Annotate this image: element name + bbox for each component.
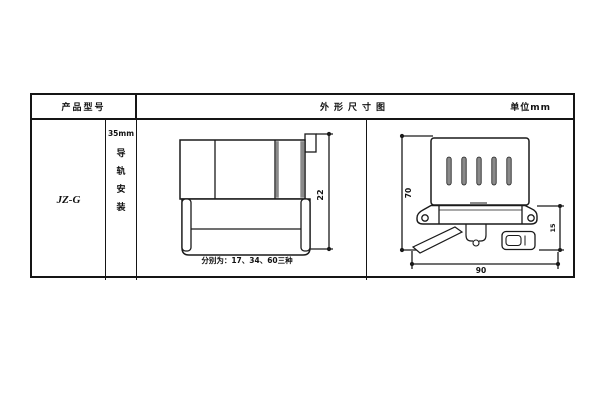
side-main-body <box>431 138 529 205</box>
side-view-cell: 70 15 90 <box>367 120 577 280</box>
product-model-header-cell: 产品型号 <box>32 95 137 118</box>
front-view-cell: 22 分别为：17、34、60三种 <box>137 120 367 280</box>
side-base <box>417 206 537 225</box>
rail-char: 装 <box>116 204 125 213</box>
unit-label: 单位mm <box>510 95 551 118</box>
rail-char: 轨 <box>116 168 125 177</box>
front-upper-body <box>180 140 305 199</box>
front-view-drawing: 22 分别为：17、34、60三种 <box>137 120 367 280</box>
model-cell: JZ-G <box>32 120 106 280</box>
side-height-dim-label: 70 <box>404 188 413 198</box>
mounting-cell: 35mm 导 轨 安 装 <box>106 120 137 280</box>
side-view-drawing: 70 15 90 <box>367 120 577 280</box>
table-body-row: JZ-G 35mm 导 轨 安 装 <box>32 120 573 280</box>
dimension-title-label: 外形尺寸图 <box>320 100 390 113</box>
rail-char: 安 <box>116 186 125 195</box>
model-name: JZ-G <box>57 194 81 206</box>
front-height-dim-label: 22 <box>316 189 325 200</box>
dimension-title-header-cell: 外形尺寸图 <box>137 95 573 118</box>
side-clip-dim-label: 15 <box>549 223 557 233</box>
rail-mount-vertical-label: 导 轨 安 装 <box>116 150 125 213</box>
rail-width-label: 35mm <box>108 129 134 138</box>
dimension-table: 产品型号 外形尺寸图 单位mm JZ-G 35mm 导 轨 安 装 <box>30 93 575 278</box>
front-top-tab <box>305 134 316 152</box>
product-model-label: 产品型号 <box>61 100 105 113</box>
din-rail-clip <box>413 224 535 253</box>
front-lower-body <box>182 199 310 255</box>
side-width-dim-label: 90 <box>476 266 486 275</box>
rail-char: 导 <box>116 150 125 159</box>
table-header-row: 产品型号 外形尺寸图 单位mm <box>32 95 573 120</box>
front-width-note: 分别为：17、34、60三种 <box>201 255 293 265</box>
drawing-sheet: 产品型号 外形尺寸图 单位mm JZ-G 35mm 导 轨 安 装 <box>0 0 600 400</box>
